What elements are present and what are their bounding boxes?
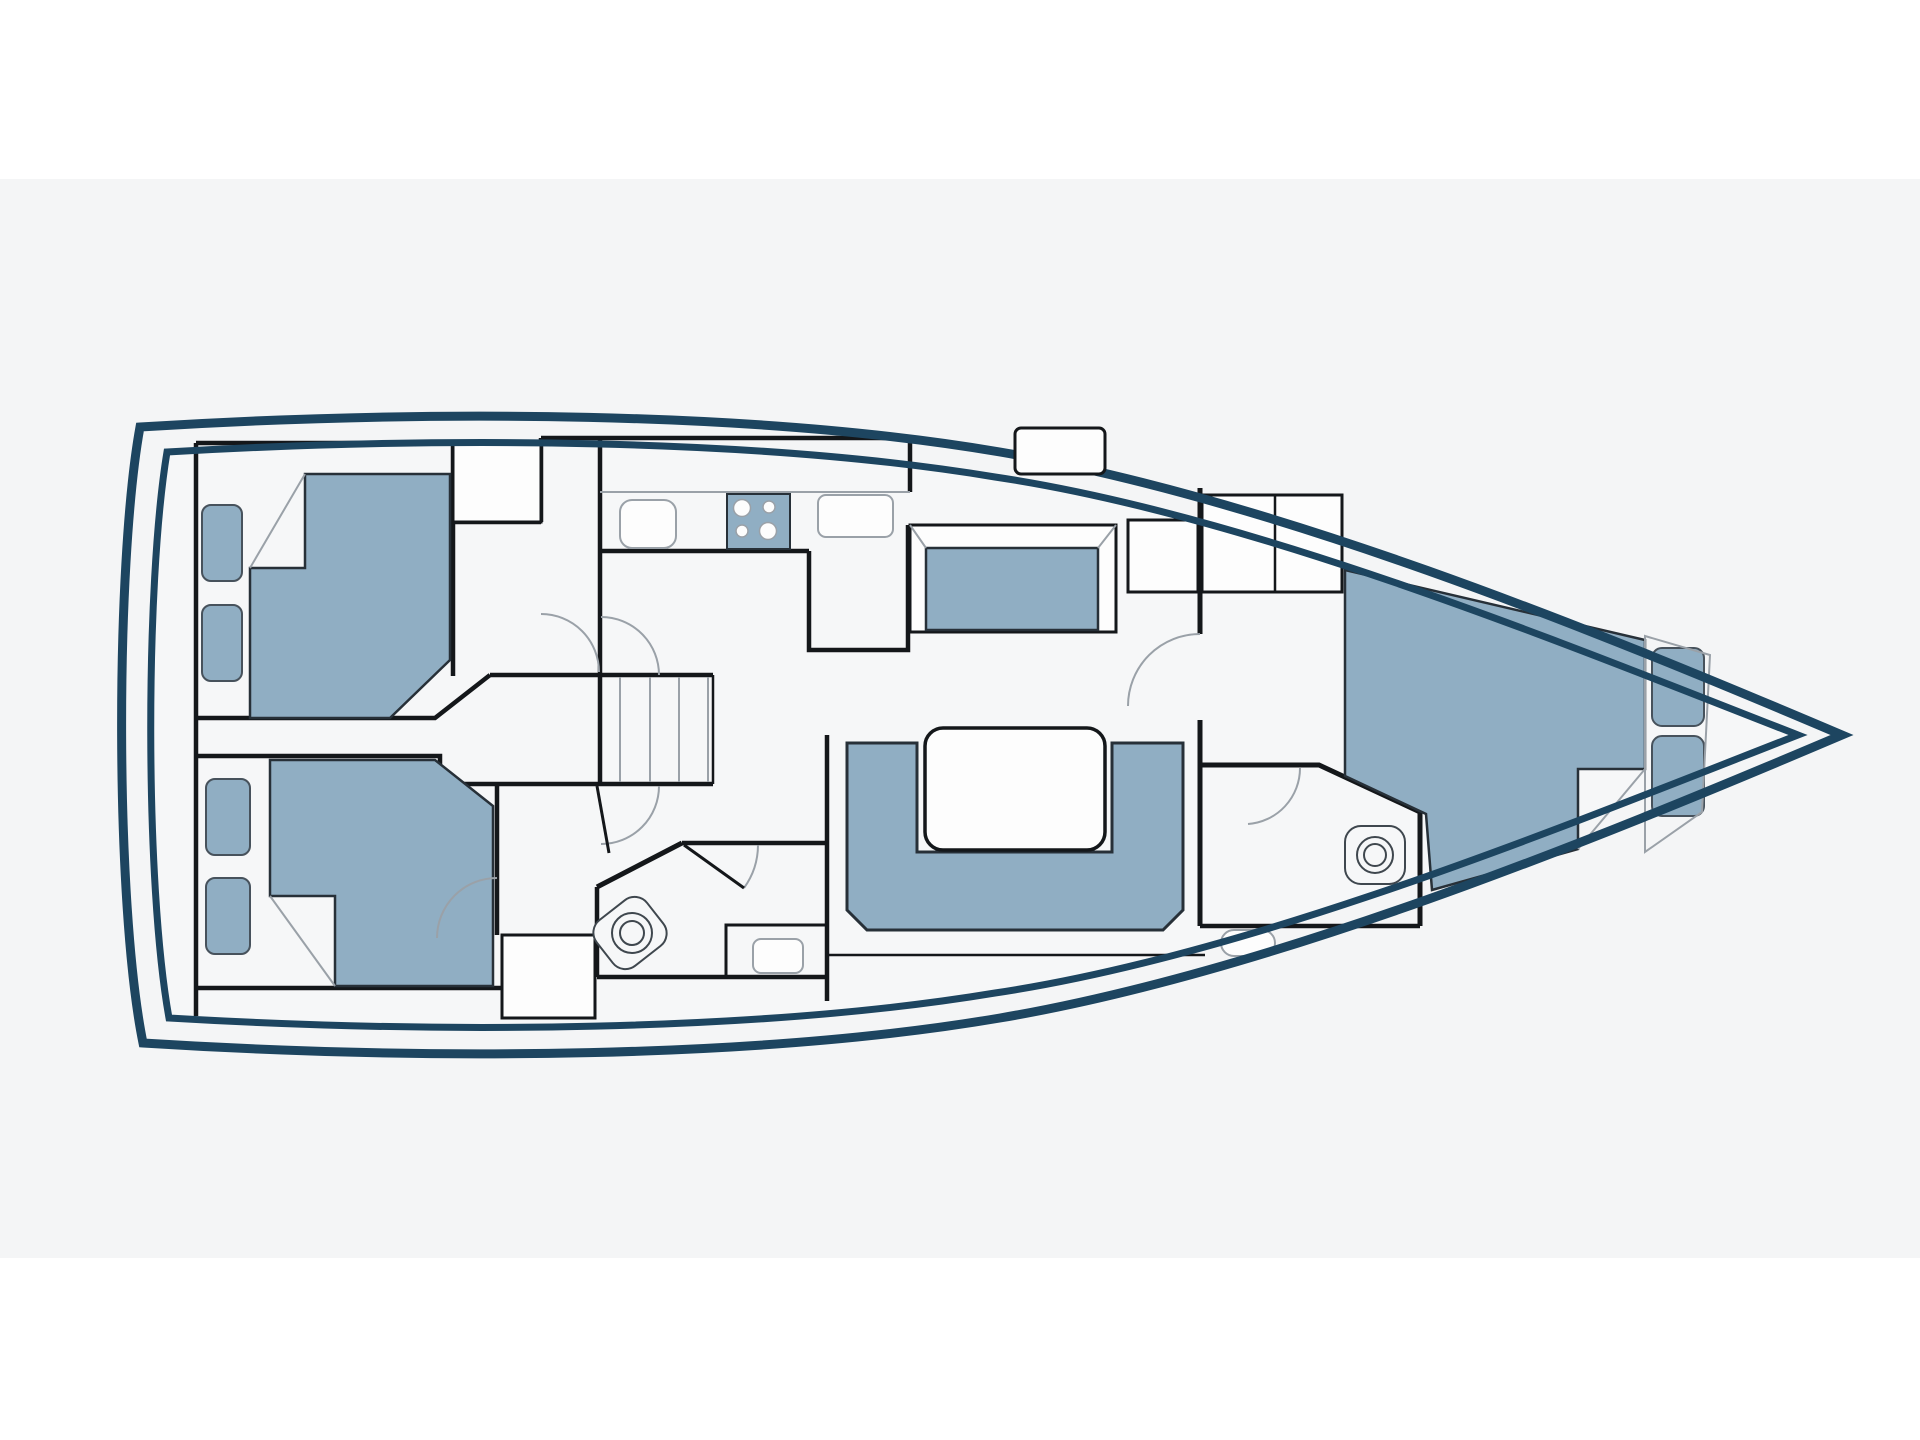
deck-plan-canvas <box>0 0 1920 1440</box>
wardrobe-aft-starboard <box>502 935 595 1018</box>
burner-large <box>734 500 751 517</box>
deck-hatch <box>1015 428 1105 474</box>
pillow <box>202 605 242 681</box>
burner-large <box>760 523 777 540</box>
screenshot-root <box>0 0 1920 1440</box>
locker-salon-forward <box>1128 520 1198 592</box>
toilet-bowl-fwd-inner <box>1364 844 1386 866</box>
burner-small <box>763 501 775 513</box>
pillow <box>202 505 242 581</box>
wardrobe-aft-port <box>453 443 541 522</box>
pillow <box>206 779 250 855</box>
pillow <box>206 878 250 954</box>
burner-small <box>736 525 748 537</box>
toilet-bowl-aft-inner <box>620 921 644 945</box>
galley-drainer <box>818 495 893 537</box>
aft-head-washbasin <box>753 939 803 973</box>
salon-table <box>925 728 1105 850</box>
settee-cushion <box>926 548 1098 630</box>
galley-sink <box>620 500 676 548</box>
